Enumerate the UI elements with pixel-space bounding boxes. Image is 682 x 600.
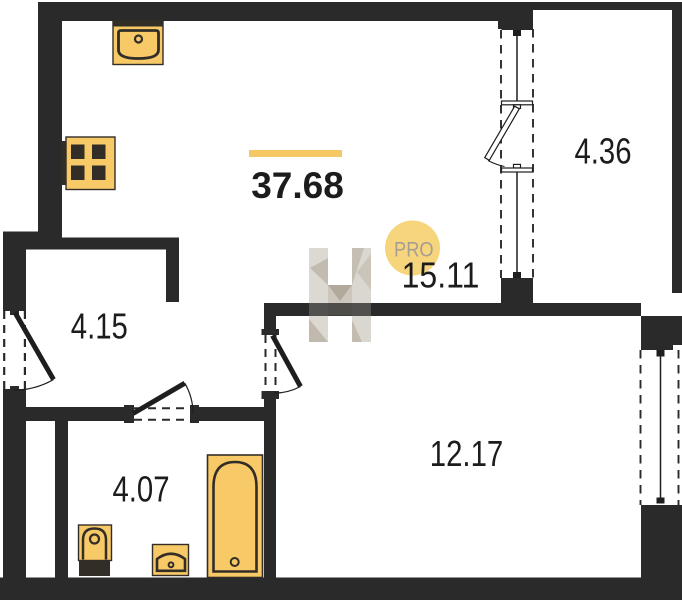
svg-text:12.17: 12.17 — [430, 433, 503, 474]
svg-text:4.15: 4.15 — [71, 305, 128, 346]
svg-text:15.11: 15.11 — [402, 256, 480, 296]
svg-text:4.07: 4.07 — [112, 469, 169, 510]
svg-text:37.68: 37.68 — [251, 165, 344, 206]
svg-text:4.36: 4.36 — [574, 130, 631, 171]
